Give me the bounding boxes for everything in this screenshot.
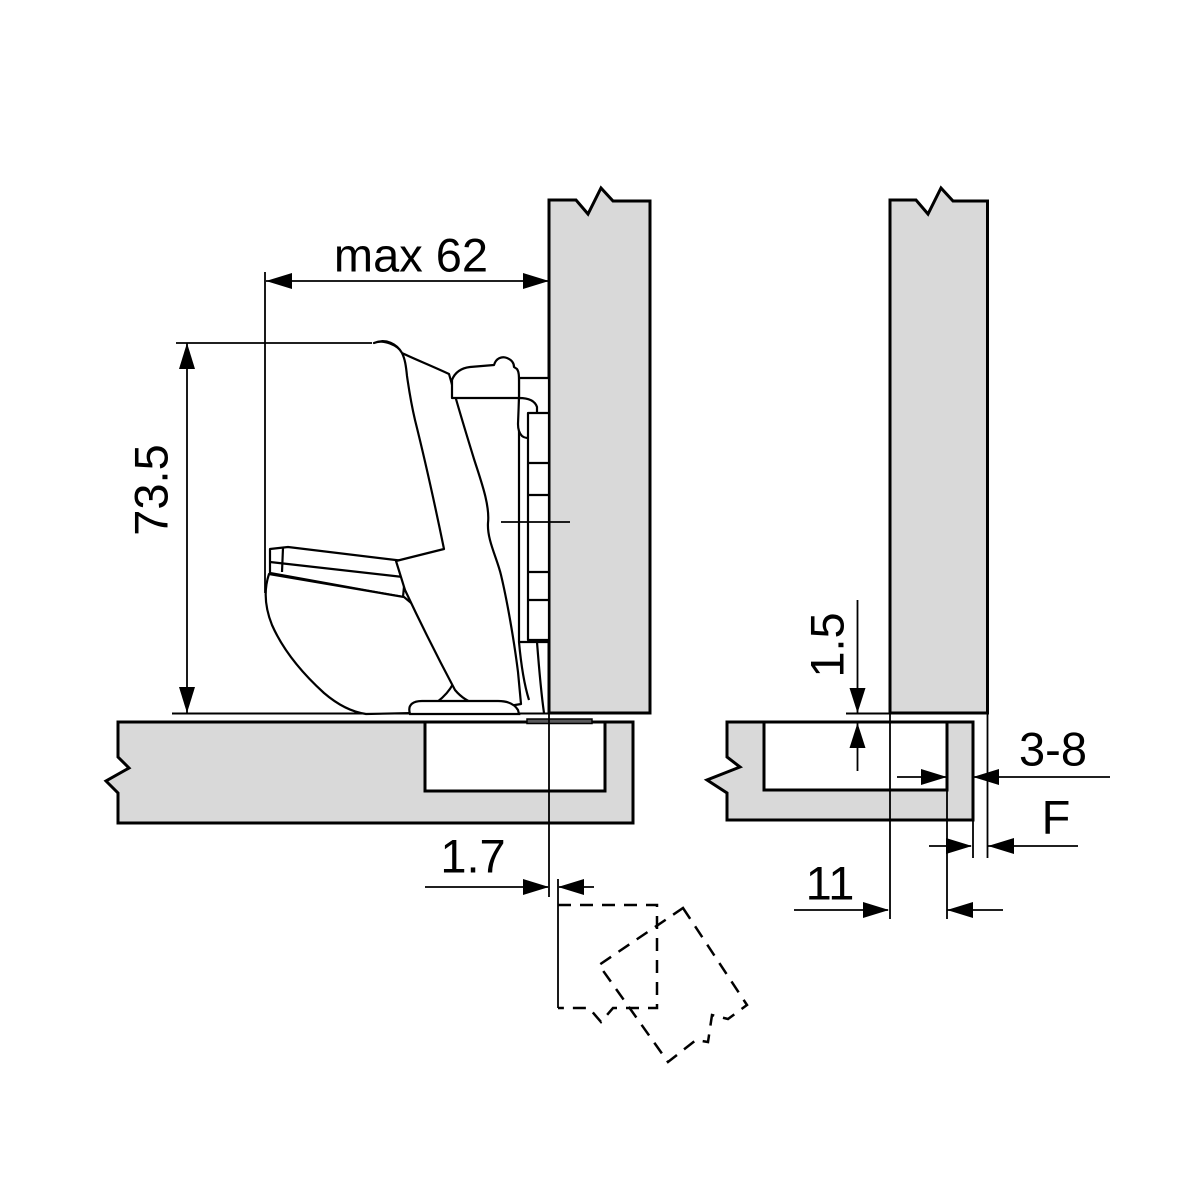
dim-label-3-8: 3-8 xyxy=(1019,726,1087,773)
door-swing-dashed-outlines xyxy=(558,905,747,1062)
door-panel-right-view xyxy=(890,188,988,713)
door-open-position-2 xyxy=(599,908,747,1062)
hinge-base-bar xyxy=(527,719,592,724)
dim-label-11: 11 xyxy=(806,860,855,907)
dimension-max-62 xyxy=(265,272,549,593)
dim-label-73-5: 73.5 xyxy=(128,444,175,535)
hinge-cup-flange xyxy=(409,701,519,714)
hinge-cup-bore xyxy=(425,724,605,792)
dim-label-1-5: 1.5 xyxy=(804,612,851,677)
cabinet-panel-right-view xyxy=(707,722,973,820)
dim-label-F: F xyxy=(1042,794,1071,841)
technical-drawing xyxy=(0,0,1200,1200)
left-view xyxy=(106,188,747,1062)
door-open-position-1 xyxy=(558,905,657,1022)
dim-label-max-62: max 62 xyxy=(334,232,488,279)
dim-label-1-7: 1.7 xyxy=(440,833,505,880)
door-panel-left-view xyxy=(549,188,650,713)
hinge-plate-cap xyxy=(452,357,519,398)
diagram-canvas: max 62 73.5 1.7 1.5 3-8 F 11 xyxy=(0,0,1200,1200)
